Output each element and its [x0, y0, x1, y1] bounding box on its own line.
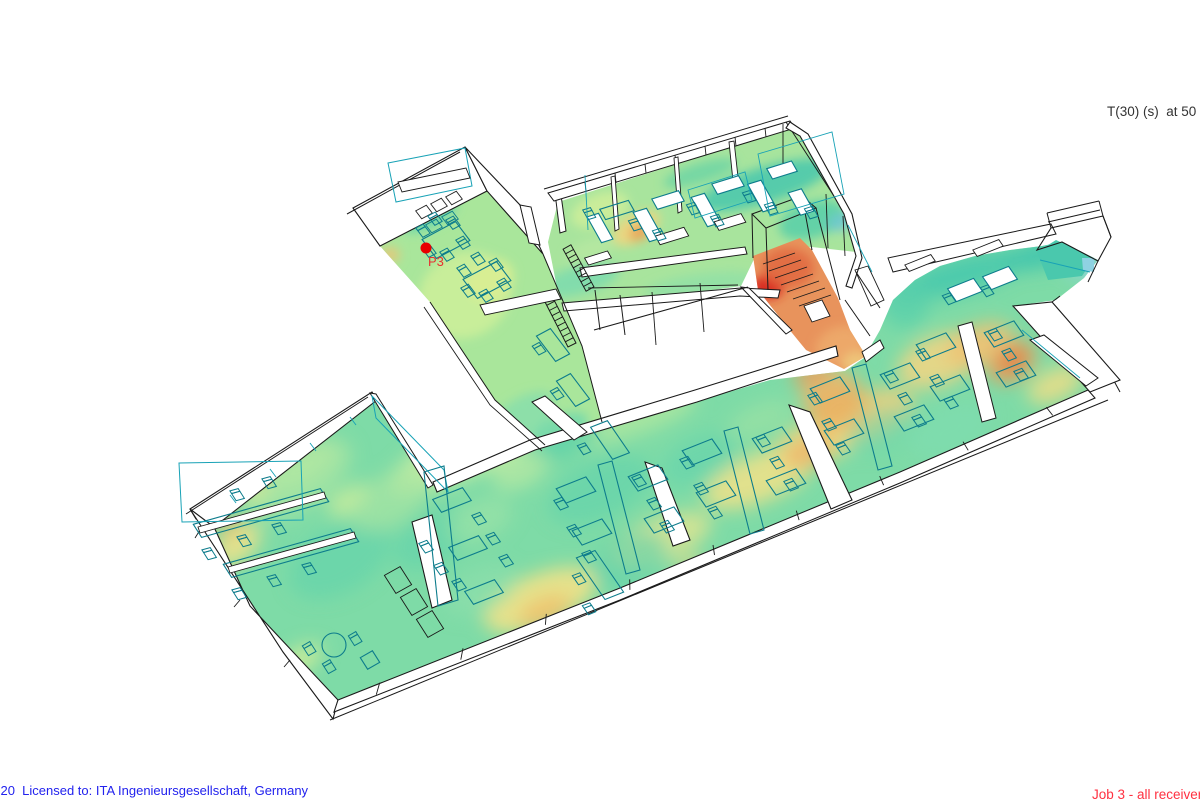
svg-text:2020 Licensed to: ITA Ingenie: 2020 Licensed to: ITA Ingenieursgesellsc… — [0, 783, 309, 798]
svg-text:T(30) (s) at 50: T(30) (s) at 50 — [1107, 104, 1196, 119]
svg-text:P3: P3 — [428, 254, 444, 269]
svg-text:Job 3 - all receivers: Job 3 - all receivers — [1092, 787, 1200, 800]
